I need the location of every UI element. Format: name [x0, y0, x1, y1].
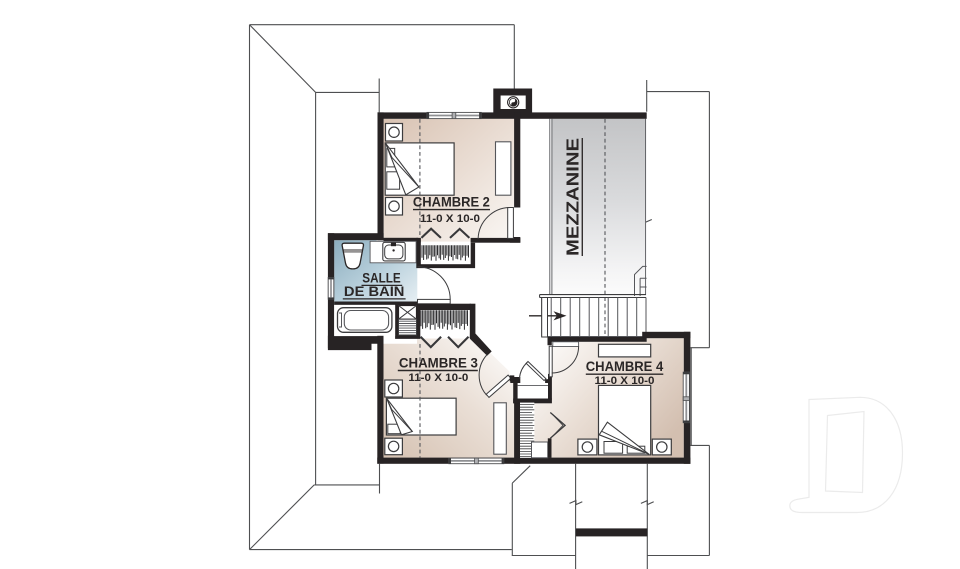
svg-text:MEZZANINE: MEZZANINE: [562, 138, 582, 256]
svg-text:11-0 X 10-0: 11-0 X 10-0: [595, 375, 655, 387]
svg-text:CHAMBRE 3: CHAMBRE 3: [399, 354, 478, 370]
svg-text:11-0 X 10-0: 11-0 X 10-0: [420, 213, 480, 225]
svg-text:CHAMBRE 4: CHAMBRE 4: [586, 358, 664, 374]
svg-text:DE BAIN: DE BAIN: [344, 283, 405, 299]
svg-text:CHAMBRE 2: CHAMBRE 2: [413, 194, 490, 210]
svg-text:11-0 X 10-0: 11-0 X 10-0: [408, 372, 468, 384]
